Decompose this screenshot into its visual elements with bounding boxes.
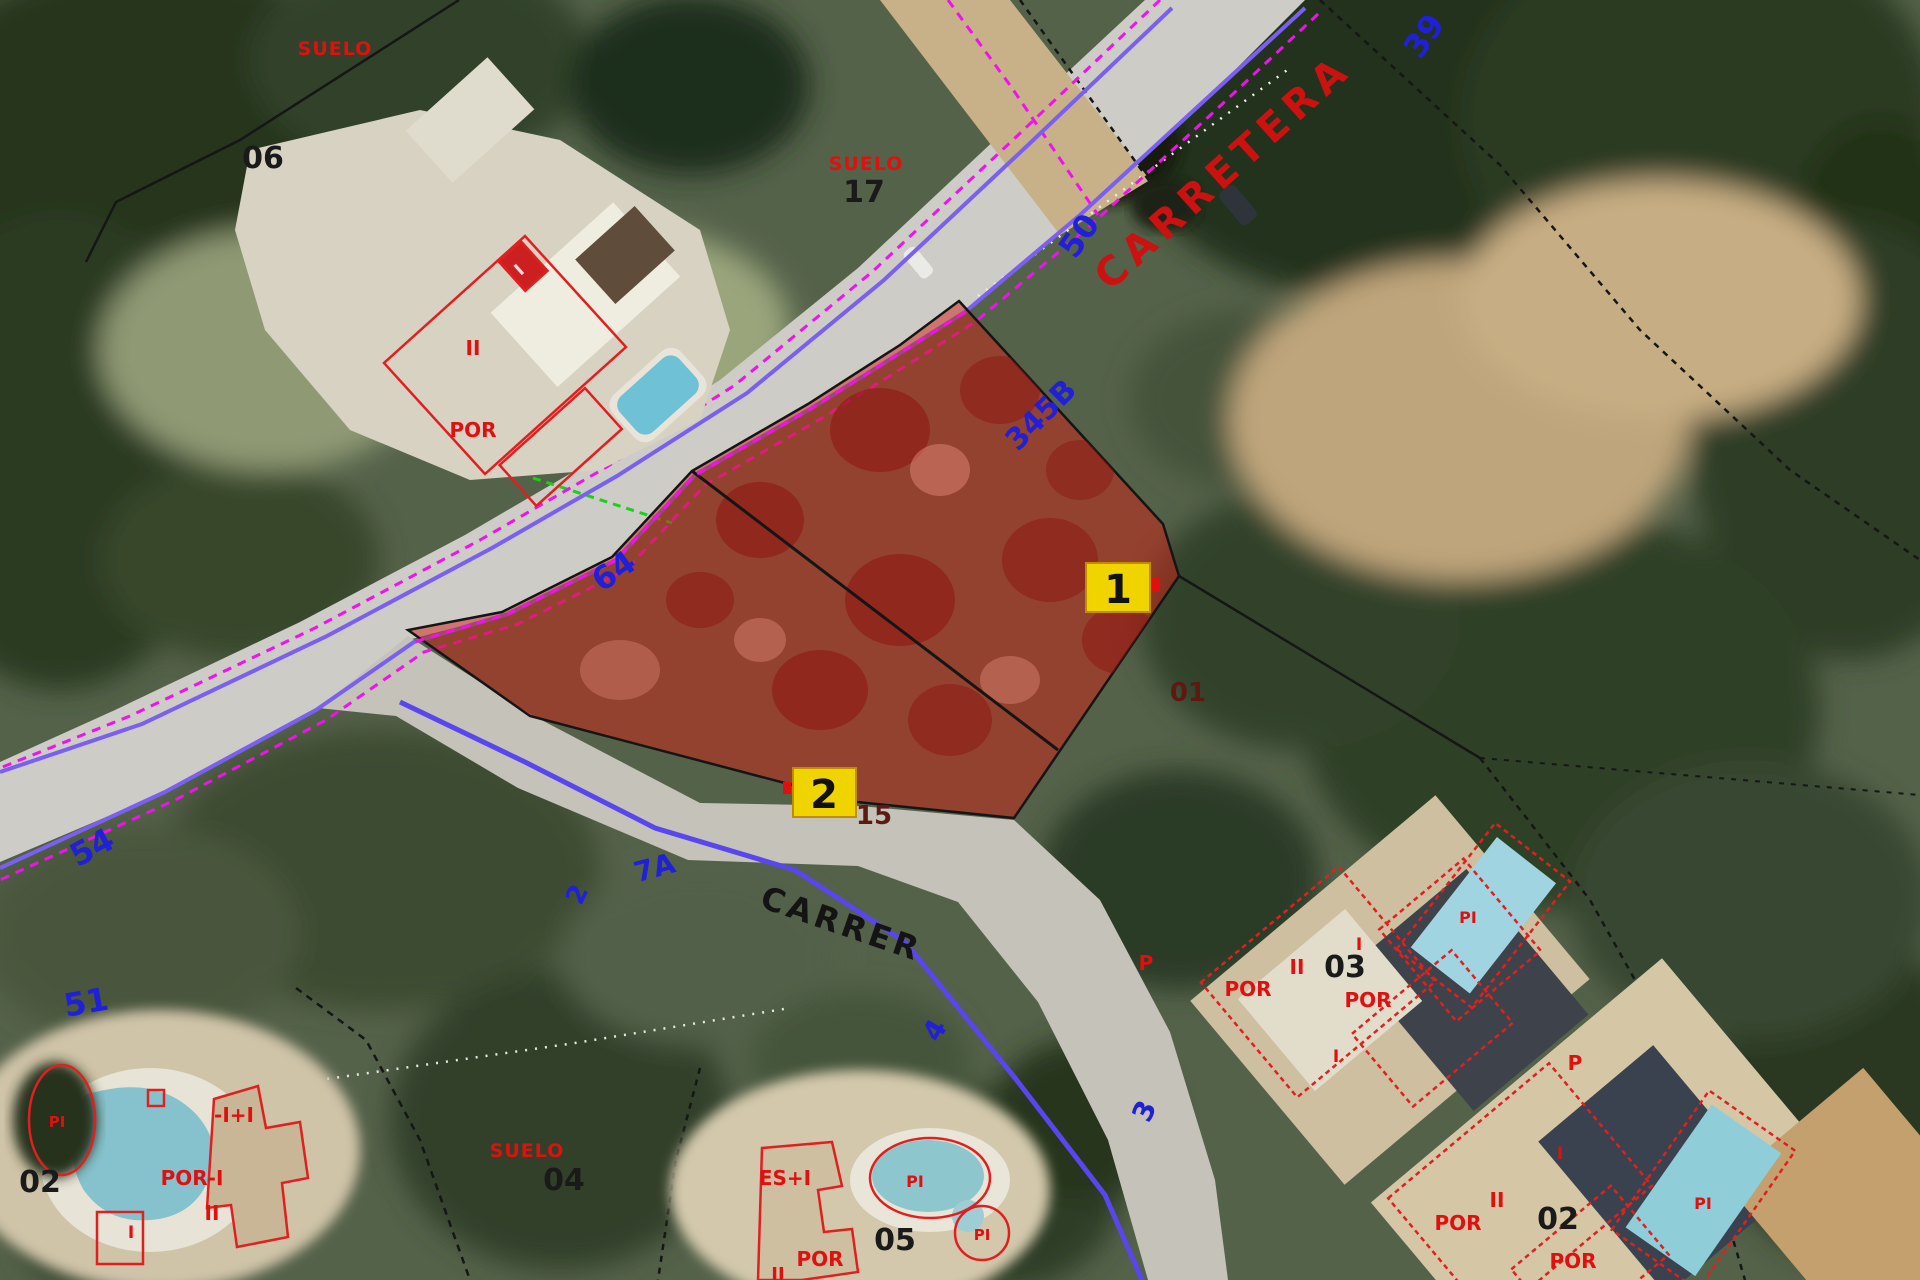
red-marker [1150,578,1160,592]
building-label-i+i-bottomleft: -I+I [214,1103,254,1127]
building-label-pi-round-bottomcenter: PI [974,1226,991,1244]
road-number-51: 51 [61,980,111,1025]
parcel-number-06: 06 [242,141,284,176]
building-label-por2-bottomright: POR [1549,1249,1596,1273]
clearing-blob [580,640,660,700]
tree-blob [772,650,868,730]
parcel-number-17: 17 [843,175,885,210]
building-label-por-i-bottomleft: POR-I [161,1166,224,1190]
tree-blob [666,572,734,628]
red-marker [783,782,791,794]
forest-blob [570,0,810,175]
building-label-i-bottomleft: I [128,1223,134,1243]
building-label-i-top-right: I [1356,935,1362,955]
building-label-pi-pool-bottomcenter: PI [906,1172,924,1191]
building-label-ii-bottomleft: II [205,1201,220,1225]
building-label-pi-bottomleft: PI [49,1113,66,1131]
building-label-esi-bottomcenter: ES+I [759,1166,811,1190]
parcel-number-15: 15 [856,801,892,831]
building-label-por-right: POR [1344,988,1391,1012]
building-label-i-bottom-right: I [1333,1047,1339,1067]
dirt-clearing [1460,180,1860,420]
parcel-number-02-left: 02 [19,1165,61,1200]
tree-blob [908,684,992,756]
zone-label-suelo: SUELO [490,1140,565,1162]
building-label-pi-pool-right: PI [1459,908,1477,927]
building-label-por-left-right: POR [1224,977,1271,1001]
building-label-por-bottomcenter: POR [796,1247,843,1271]
parcel-badge-2[interactable]: 2 [793,768,856,818]
building-label-pi-pool-bottomright: PI [1694,1194,1712,1213]
building-label-i-bottomright: I [1557,1144,1563,1164]
map-canvas: CARRETERA CARRER 39 50 345B 64 54 51 7A … [0,0,1920,1280]
building-label-p-right: P [1139,951,1154,975]
tree-blob [1002,518,1098,602]
building-label-ii-topleft: II [466,336,481,360]
parcel-number-04: 04 [543,1163,585,1198]
cadastral-map-viewport: CARRETERA CARRER 39 50 345B 64 54 51 7A … [0,0,1920,1280]
building-label-p-bottomright: P [1568,1051,1583,1075]
parcel-badge-1[interactable]: 1 [1086,563,1150,613]
zone-label-suelo: SUELO [298,38,373,60]
clearing-blob [734,618,786,662]
building-label-por-bottomright: POR [1434,1211,1481,1235]
parcel-number-01: 01 [1170,678,1206,708]
parcel-number-03: 03 [1324,950,1366,985]
clearing-blob [910,444,970,496]
building-label-ii-bottomright: II [1490,1188,1505,1212]
parcel-number-02-right: 02 [1537,1202,1579,1237]
building-label-por-topleft: POR [449,418,496,442]
badge-2-number: 2 [810,772,838,818]
building-label-ii-bottomcenter: II [771,1264,784,1280]
zone-label-suelo: SUELO [829,153,904,175]
parcel-number-05: 05 [874,1223,916,1258]
badge-1-number: 1 [1104,567,1132,613]
building-label-ii-right: II [1290,955,1305,979]
